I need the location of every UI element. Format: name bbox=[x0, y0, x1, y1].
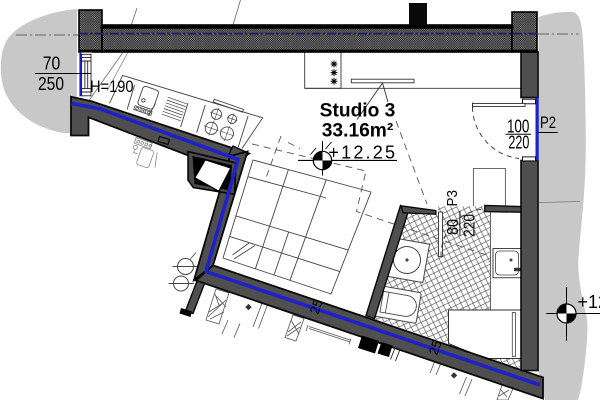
svg-text:33.16m²: 33.16m² bbox=[322, 120, 393, 141]
svg-text:+12.2: +12.2 bbox=[578, 292, 600, 312]
svg-text:H=190: H=190 bbox=[90, 78, 134, 96]
svg-text:250: 250 bbox=[38, 73, 64, 94]
svg-text:P3: P3 bbox=[444, 190, 461, 207]
svg-text:220: 220 bbox=[462, 214, 479, 237]
svg-text:220: 220 bbox=[508, 133, 529, 153]
svg-text:70: 70 bbox=[43, 53, 61, 74]
svg-text:+12.25: +12.25 bbox=[328, 143, 397, 163]
svg-text:P2: P2 bbox=[540, 113, 556, 132]
svg-text:Studio 3: Studio 3 bbox=[320, 100, 396, 121]
